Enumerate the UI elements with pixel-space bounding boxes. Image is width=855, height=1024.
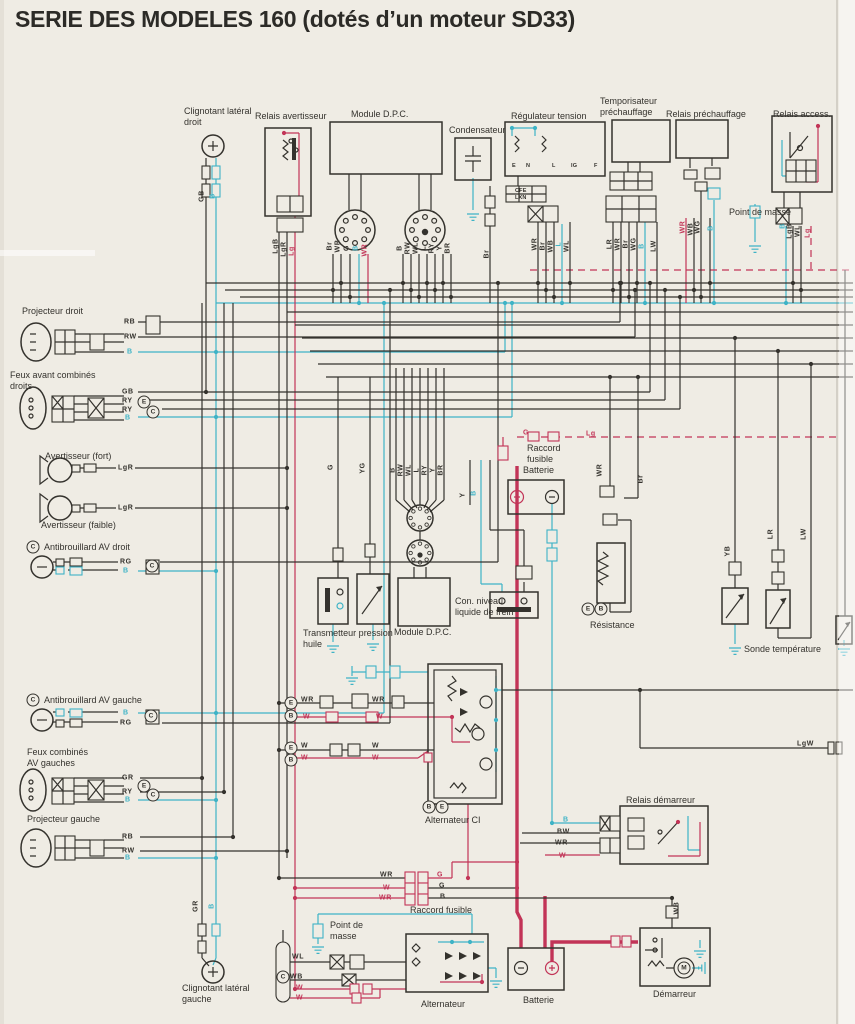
wire-label: L [414,468,421,473]
wire-label: WR [680,221,687,234]
circled-letter: M [678,962,691,975]
wire-label: WR [362,244,369,257]
wire-label: B [708,225,715,231]
component-label-con-niveau-liquide-frein: Con. niveau liquide de frein [455,596,514,619]
wire-label: W [383,885,390,892]
wire-label: RB [122,834,133,841]
component-label-temporisateur-prechauffage: Temporisateur préchauffage [600,96,657,119]
component-label-alternateur-ci: Alternateur CI [425,815,481,826]
wire-label: W [296,985,303,992]
wire-label: RY [122,398,133,405]
component-label-avertisseur-fort: Avertisseur (fort) [45,451,111,462]
wire-label: YB [725,546,732,557]
paper-fold-highlight [0,250,95,256]
wire-label: WR [335,240,342,253]
wire-label: N [526,163,530,169]
wire-label: L [421,246,428,251]
circled-letter: C [27,694,40,707]
wire-label: B [440,894,446,901]
wire-label: BR [438,464,445,475]
wire-label: BR [445,242,452,253]
wire-label: WR [555,840,568,847]
wire-label: RY [422,465,429,476]
wire-label: Br [484,250,491,259]
circled-letter: C [277,971,290,984]
wire-label: GR [193,900,200,912]
wire-label: Y [430,467,437,472]
circled-letter: C [147,406,160,419]
component-label-point-de-masse-2: Point de masse [330,920,363,943]
component-label-sonde-temperature: Sonde température [744,644,821,655]
component-label-projecteur-gauche: Projecteur gauche [27,814,100,825]
circled-letter: B [423,801,436,814]
wire-label: YG [360,462,367,473]
wire-label: LW [801,528,808,540]
circled-letter: C [145,710,158,723]
component-label-module-dpc-2: Module D.P.C. [394,627,451,638]
component-label-projecteur-droit: Projecteur droit [22,306,83,317]
wire-label: G [439,883,445,890]
component-label-raccord-fusible-2: Raccord fusible [410,905,472,916]
wire-label: WL [413,242,420,254]
wire-label: W [296,995,303,1002]
component-label-avertisseur-faible: Avertisseur (faible) [41,520,116,531]
wire-label: WL [564,240,571,252]
wire-label: WB [290,974,303,981]
wire-label: GR [122,775,134,782]
wire-label: WG [631,237,638,250]
wire-label: WB [688,223,695,236]
wire-label: G [437,872,443,879]
wire-label: RY [429,243,436,254]
wire-label: RG [120,559,132,566]
circled-letter: C [27,541,40,554]
wire-label: Y [437,245,444,250]
wire-label: WB [674,902,681,915]
component-label-raccord-fusible-1: Raccord fusible [527,443,561,466]
component-label-feux-avant-combines-droits: Feux avant combinés droits [10,370,96,393]
component-label-demarreur: Démarreur [653,989,696,1000]
wire-label: F [594,163,598,169]
wire-label: G [344,245,351,251]
wire-label: BW [557,829,570,836]
component-label-module-dpc-1: Module D.P.C. [351,109,408,120]
wire-label: LgB [787,223,794,238]
component-label-feux-combines-av-gauches: Feux combinés AV gauches [27,747,88,770]
wire-label: WL [406,464,413,476]
wire-label: WR [380,872,393,879]
wire-label: WG [695,220,702,233]
wire-label: IG [571,163,577,169]
wire-label: B [210,193,217,199]
circled-letter: B [595,603,608,616]
wire-label: WR [615,238,622,251]
wire-label: LgR [281,241,288,256]
paper-edge-highlight [839,0,855,1024]
wire-label: WL [795,225,802,237]
component-label-relais-demarreur: Relais démarreur [626,795,695,806]
component-label-regulateur-tension: Régulateur tension [511,111,587,122]
wire-label: W [301,755,308,762]
paper-crease [836,0,838,1024]
wire-label: B [125,415,131,422]
wire-label: B [563,817,569,824]
component-label-batterie-1: Batterie [523,465,554,476]
wire-label: LgW [797,741,814,748]
wire-label: GB [122,389,134,396]
wire-label: B [123,710,129,717]
wire-label: Lg [805,228,812,238]
wire-label: WR [597,464,604,477]
circled-letter: E [582,603,595,616]
connector-layer [52,160,842,1003]
wire-label: GB [199,190,206,202]
wire-label: RB [124,319,135,326]
wire-label: LR [607,239,614,250]
wire-label: B [471,490,478,496]
wire-label: LW [651,240,658,252]
component-label-antibrouillard-av-droit: Antibrouillard AV droit [44,542,130,553]
wire-label: L [556,242,563,247]
wire-label: W [372,743,379,750]
wire-label: G [328,464,335,470]
wire-label: WR [301,697,314,704]
wire-label: RY [122,789,133,796]
wire-label: LR [768,529,775,540]
component-label-relais-access: Relais access. [773,109,831,120]
component-label-point-de-masse-1: Point de masse [729,207,791,218]
wire-label: W [301,743,308,750]
wire-label: B [209,903,216,909]
wire-label: Br [638,475,645,484]
wire-label: LgB [273,238,280,253]
wire-label: B [390,467,397,473]
wire-label: Y [460,492,467,497]
component-label-resistance: Résistance [590,620,635,631]
circled-letter: E [285,697,298,710]
wiring-diagram-page: SERIE DES MODELES 160 (dotés d’un moteur… [0,0,855,1024]
wire-label: W [372,755,379,762]
wire-label: RW [398,464,405,477]
wire-label: B [127,349,133,356]
wire-label: Br [540,242,547,251]
circled-letter: E [436,801,449,814]
component-label-antibrouillard-av-gauche: Antibrouillard AV gauche [44,695,142,706]
cyan-wire-layer [138,128,853,987]
wire-label: WR [379,895,392,902]
wire-label: LXN [515,195,527,201]
circled-letter: C [146,560,159,573]
wire-label: LgR [118,465,133,472]
wire-label: WR [372,697,385,704]
wire-label: B [353,245,360,251]
component-label-clignotant-lateral-droit: Clignotant latéral droit [184,106,252,129]
wire-label: Lg [289,246,296,256]
wire-label: B [780,223,787,229]
component-label-transmetteur-pression-huile: Transmetteur pression huile [303,628,393,651]
wire-label: W [303,714,310,721]
wire-label: B [125,797,131,804]
black-wire-layer [53,132,853,980]
component-label-relais-avertisseur: Relais avertisseur [255,111,327,122]
wire-label: RY [122,407,133,414]
wire-label: WR [532,238,539,251]
wire-label: CFE [515,188,527,194]
wire-label: W [376,714,383,721]
wire-label: B [123,568,129,575]
wire-label: B [125,855,131,862]
circled-letter: B [285,754,298,767]
wire-label: E [512,163,516,169]
wiring-diagram-svg [0,0,855,1024]
wire-label: WB [548,240,555,253]
wire-label: B [397,245,404,251]
wire-label: W [559,853,566,860]
wire-label: Br [327,242,334,251]
wire-label: Br [623,240,630,249]
wire-label: G [523,430,529,437]
component-label-relais-prechauffage: Relais préchauffage [666,109,746,120]
wire-label: B [639,243,646,249]
wire-label: RW [124,334,137,341]
paper-edge-shadow [0,0,4,1024]
circled-letter: C [147,789,160,802]
circled-letter: B [285,710,298,723]
wire-label: RW [122,848,135,855]
component-label-batterie-2: Batterie [523,995,554,1006]
wire-label: WL [292,954,304,961]
wire-label: LgR [118,505,133,512]
wire-label: L [552,163,556,169]
component-label-condensateur: Condensateur [449,125,506,136]
wire-label: RW [405,242,412,255]
component-label-alternateur-2: Alternateur [421,999,465,1010]
component-label-clignotant-lateral-gauche: Clignotant latéral gauche [182,983,250,1006]
wire-label: Lg [586,431,596,438]
wire-label: RG [120,720,132,727]
